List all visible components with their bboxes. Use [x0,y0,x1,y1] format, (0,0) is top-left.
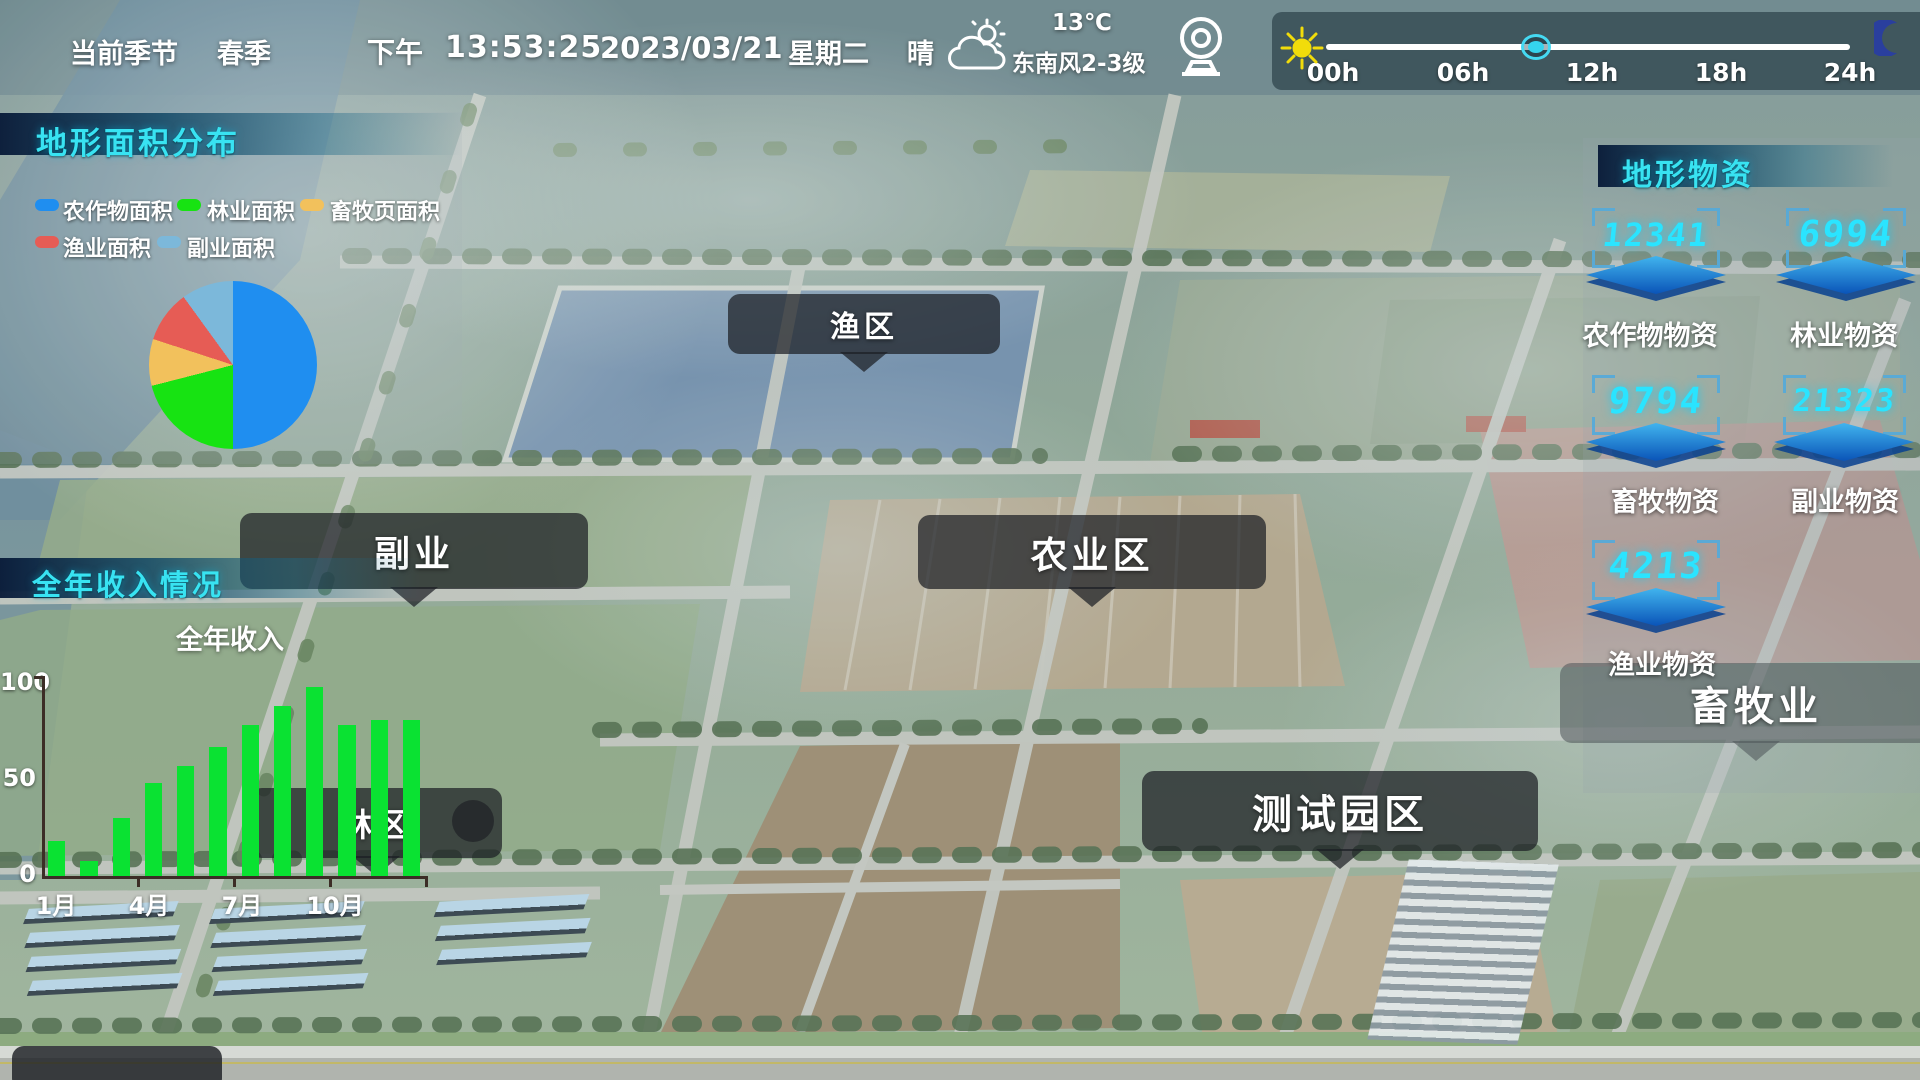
supply-label-husbandry: 畜牧物资 [1573,480,1757,519]
legend-swatch-sideline [157,236,181,248]
legend-label-fishery: 渔业面积 [63,231,151,263]
income-panel-title: 全年收入情况 [32,562,224,604]
ytick-0: 0 [0,860,36,888]
supply-label-forestry: 林业物资 [1752,314,1920,353]
forest-zone-dot [452,800,494,842]
terrain-pie [149,281,317,449]
map-label-fish-zone-text: 渔区 [830,302,898,346]
map-label-fish-zone[interactable]: 渔区 [728,294,1000,354]
daypart-label: 下午 [367,31,423,71]
legend-swatch-fishery [35,236,59,248]
income-bar [113,818,130,876]
time-slider-panel: 00h 06h 12h 18h 24h [1272,12,1920,90]
sun-icon [1280,26,1324,70]
y-axis-cap [34,676,43,679]
legend-label-forestry: 林业面积 [207,194,295,226]
x-axis-tickmark [425,879,428,887]
legend-swatch-husbandry [300,199,324,211]
income-bar [338,725,355,876]
supply-value-sideline: 21323 [1781,383,1908,419]
map-label-test-park[interactable]: 测试园区 [1142,771,1538,851]
time-slider-track[interactable] [1326,44,1850,50]
callout-tail [840,352,888,372]
legend-label-crops: 农作物面积 [63,194,173,226]
xtick-jan: 1月 [21,886,91,921]
income-bar [274,706,291,876]
income-bar [80,861,97,876]
map-label-test-park-text: 测试园区 [1252,782,1428,840]
income-bar [177,766,194,876]
dashboard-root: 当前季节 春季 下午 13:53:25 2023/03/21 星期二 晴 13℃… [0,0,1920,1080]
legend-label-sideline: 副业面积 [187,231,275,263]
terrain-panel-title: 地形面积分布 [36,118,240,163]
supply-value-fishery: 4213 [1590,546,1722,587]
sun-behind-cloud-icon [945,16,1011,80]
partial-map-label [12,1046,222,1080]
supply-value-crops: 12341 [1590,216,1722,254]
slider-tick-06h: 06h [1423,58,1503,87]
ytick-100: 100 [0,668,36,696]
map-label-agriculture-zone[interactable]: 农业区 [918,515,1266,589]
income-bars [48,683,420,876]
wind: 东南风2-3级 [1012,44,1146,78]
supply-label-crops: 农作物物资 [1558,314,1742,353]
legend-label-husbandry: 畜牧页面积 [330,194,440,226]
supply-diamond-icon [1774,423,1914,461]
time-slider-handle[interactable] [1521,34,1551,60]
temperature: 13℃ [1052,10,1112,36]
clock-time: 13:53:25 [445,30,602,65]
xtick-oct: 10月 [300,886,370,921]
xtick-apr: 4月 [114,886,184,921]
y-axis-line [42,676,45,878]
slider-tick-18h: 18h [1681,58,1761,87]
income-bar [145,783,162,876]
income-series-label: 全年收入 [176,618,284,657]
legend-swatch-forestry [177,199,201,211]
income-bar [403,720,420,876]
supply-diamond-icon [1776,256,1916,294]
weekday: 星期二 [788,32,869,71]
moon-icon [1874,20,1910,56]
slider-tick-12h: 12h [1552,58,1632,87]
camera-icon[interactable] [1172,14,1230,78]
supply-value-husbandry: 9794 [1590,381,1722,422]
map-label-husbandry-text: 畜牧业 [1690,674,1822,732]
income-bar [48,841,65,876]
income-bar [209,747,226,876]
callout-tail [1732,741,1780,761]
season-label: 当前季节 [70,32,178,71]
supply-value-forestry: 6994 [1784,214,1908,255]
xtick-jul: 7月 [207,886,277,921]
callout-tail [1316,849,1364,869]
supply-diamond-icon [1586,256,1726,294]
income-bar [306,687,323,876]
callout-tail [1068,587,1116,607]
income-bar [242,725,259,876]
date: 2023/03/21 [600,31,783,65]
slider-tick-24h: 24h [1810,58,1890,87]
legend-swatch-crops [35,199,59,211]
map-label-agriculture-zone-text: 农业区 [1031,525,1154,579]
supply-diamond-icon [1586,588,1726,626]
supply-label-fishery: 渔业物资 [1570,643,1754,682]
supplies-panel-title: 地形物资 [1622,150,1754,194]
supply-diamond-icon [1586,423,1726,461]
supply-label-sideline: 副业物资 [1753,480,1920,519]
income-bar [371,720,388,876]
ytick-50: 50 [0,764,36,792]
weather-text: 晴 [907,32,934,71]
time-slider-handle-dot [1528,41,1544,53]
season-value: 春季 [217,32,271,71]
